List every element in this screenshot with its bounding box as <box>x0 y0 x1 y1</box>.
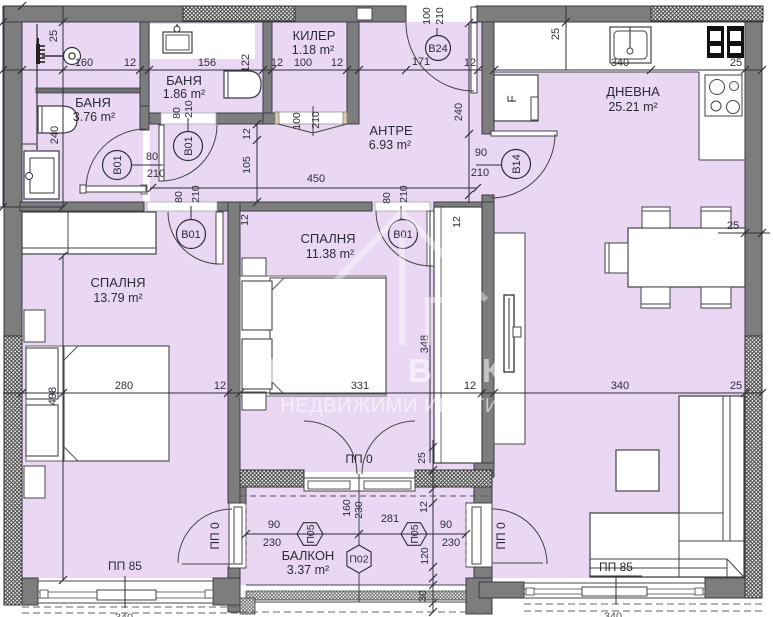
svg-text:ПП 0: ПП 0 <box>494 522 508 550</box>
svg-text:30: 30 <box>417 590 429 602</box>
svg-text:210: 210 <box>310 111 322 129</box>
svg-text:3.76 m²: 3.76 m² <box>73 110 115 124</box>
svg-text:ПП 0: ПП 0 <box>208 522 222 550</box>
svg-text:160: 160 <box>341 499 353 517</box>
svg-text:1.86 m²: 1.86 m² <box>163 87 205 101</box>
svg-text:156: 156 <box>198 57 216 69</box>
svg-text:АНТРЕ: АНТРЕ <box>369 123 413 138</box>
svg-text:П05: П05 <box>409 524 421 543</box>
svg-text:12: 12 <box>331 57 343 69</box>
svg-text:100: 100 <box>421 7 433 25</box>
svg-text:ДНЕВНА: ДНЕВНА <box>606 84 660 99</box>
svg-text:6.93 m²: 6.93 m² <box>369 138 411 152</box>
svg-text:90: 90 <box>268 519 280 531</box>
svg-text:240: 240 <box>49 126 61 144</box>
svg-text:1.18 m²: 1.18 m² <box>292 43 334 57</box>
svg-text:210: 210 <box>471 167 489 179</box>
svg-text:25: 25 <box>730 57 742 69</box>
svg-text:БАЛКОН: БАЛКОН <box>282 548 335 563</box>
svg-text:25: 25 <box>416 452 428 464</box>
svg-text:230: 230 <box>442 537 460 549</box>
svg-text:СПАЛНЯ: СПАЛНЯ <box>301 231 356 246</box>
svg-text:340: 340 <box>611 57 629 69</box>
svg-text:П05: П05 <box>305 524 317 543</box>
svg-text:12: 12 <box>241 128 253 140</box>
svg-text:БАНЯ: БАНЯ <box>75 95 111 110</box>
svg-text:160: 160 <box>75 57 93 69</box>
svg-text:F: F <box>505 95 519 102</box>
svg-text:ПП 85: ПП 85 <box>108 559 142 573</box>
svg-text:КИЛЕР: КИЛЕР <box>293 28 336 43</box>
svg-text:280: 280 <box>115 380 133 392</box>
svg-text:B24: B24 <box>428 43 448 55</box>
svg-text:25: 25 <box>48 30 60 42</box>
svg-text:80: 80 <box>381 192 393 204</box>
svg-text:B01: B01 <box>183 136 195 156</box>
svg-text:230: 230 <box>263 537 281 549</box>
svg-text:3.37 m²: 3.37 m² <box>287 563 329 577</box>
svg-text:ПП 85: ПП 85 <box>599 560 633 574</box>
svg-text:B01: B01 <box>112 155 124 175</box>
svg-text:240: 240 <box>453 103 465 121</box>
svg-text:НЕДВИЖИМИ ИМОТИ: НЕДВИЖИМИ ИМОТИ <box>280 395 499 417</box>
svg-text:450: 450 <box>307 173 325 185</box>
svg-text:ПП 0: ПП 0 <box>345 452 373 466</box>
svg-text:80: 80 <box>171 107 183 119</box>
svg-text:171: 171 <box>412 56 430 68</box>
svg-text:80: 80 <box>146 151 158 163</box>
svg-text:100: 100 <box>294 57 312 69</box>
svg-text:11.38 m²: 11.38 m² <box>306 247 354 261</box>
svg-text:СПАЛНЯ: СПАЛНЯ <box>91 275 146 290</box>
svg-text:ВЕК: ВЕК <box>408 352 516 389</box>
svg-text:498: 498 <box>47 387 59 405</box>
svg-text:B01: B01 <box>181 229 201 241</box>
svg-text:25: 25 <box>730 380 742 392</box>
svg-text:12: 12 <box>464 57 476 69</box>
svg-text:340: 340 <box>611 380 629 392</box>
svg-text:12: 12 <box>239 214 251 226</box>
svg-text:90: 90 <box>475 147 487 159</box>
svg-text:13.79 m²: 13.79 m² <box>93 291 142 305</box>
svg-text:210: 210 <box>183 100 195 118</box>
svg-text:105: 105 <box>241 156 253 174</box>
svg-text:25: 25 <box>727 220 739 232</box>
svg-text:B14: B14 <box>511 154 523 174</box>
svg-text:90: 90 <box>440 519 452 531</box>
svg-text:340: 340 <box>115 612 133 617</box>
svg-text:281: 281 <box>381 513 399 525</box>
svg-text:120: 120 <box>419 547 431 565</box>
svg-text:122: 122 <box>240 54 252 72</box>
svg-text:80: 80 <box>173 191 185 203</box>
svg-text:210: 210 <box>434 7 446 25</box>
svg-text:12: 12 <box>214 380 226 392</box>
svg-text:210: 210 <box>190 185 202 203</box>
svg-text:25.21 m²: 25.21 m² <box>608 100 657 114</box>
svg-text:12: 12 <box>271 57 283 69</box>
svg-text:100: 100 <box>291 112 303 130</box>
svg-text:210: 210 <box>147 168 165 180</box>
svg-text:П02: П02 <box>349 554 368 566</box>
svg-text:12: 12 <box>124 57 136 69</box>
svg-text:НОВ: НОВ <box>267 352 382 389</box>
svg-text:340: 340 <box>604 611 622 617</box>
svg-text:12: 12 <box>451 216 463 228</box>
svg-text:210: 210 <box>398 185 410 203</box>
svg-text:230: 230 <box>353 501 365 519</box>
svg-text:БАНЯ: БАНЯ <box>166 73 202 88</box>
svg-text:25: 25 <box>550 28 562 40</box>
svg-text:12: 12 <box>418 501 430 513</box>
